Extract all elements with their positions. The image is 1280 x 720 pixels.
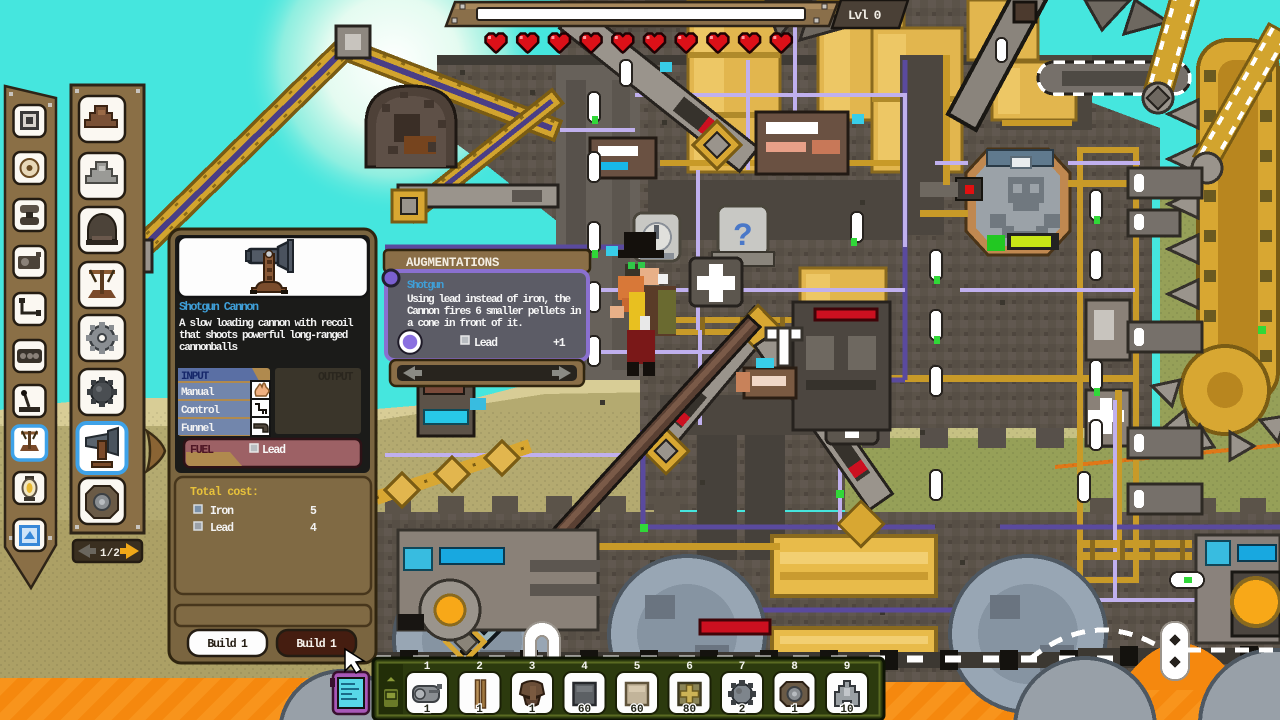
svg-text:Using lead instead of iron, th: Using lead instead of iron, the (407, 294, 572, 306)
svg-text:+1: +1 (553, 337, 566, 350)
svg-text:that shoots powerful long-rang: that shoots powerful long-ranged (179, 330, 348, 342)
svg-text:8: 8 (791, 661, 798, 673)
svg-text:4: 4 (581, 661, 588, 673)
svg-text:10: 10 (840, 704, 853, 716)
svg-text:Shotgun: Shotgun (407, 280, 444, 292)
svg-text:a cone in front of it.: a cone in front of it. (407, 318, 523, 330)
svg-text:Funnel: Funnel (181, 423, 215, 435)
svg-text:5: 5 (634, 661, 641, 673)
svg-text:INPUT: INPUT (181, 371, 210, 383)
svg-text:1: 1 (424, 704, 431, 716)
svg-text:FUEL: FUEL (190, 444, 214, 457)
svg-text:6: 6 (686, 661, 693, 673)
svg-text:1: 1 (529, 704, 536, 716)
svg-text:Manual: Manual (181, 387, 215, 399)
svg-text:AUGMENTATIONS: AUGMENTATIONS (406, 256, 500, 270)
svg-text:5: 5 (310, 505, 317, 518)
svg-text:Lead: Lead (210, 522, 234, 535)
svg-text:Shotgun Cannon: Shotgun Cannon (179, 300, 259, 314)
svg-text:60: 60 (630, 704, 643, 716)
svg-text:cannonballs: cannonballs (179, 342, 238, 354)
svg-text:9: 9 (844, 661, 851, 673)
svg-text:Iron: Iron (210, 505, 234, 518)
svg-text:Lead: Lead (262, 444, 286, 457)
svg-text:Lvl 0: Lvl 0 (848, 8, 882, 23)
svg-text:OUTPUT: OUTPUT (318, 371, 354, 384)
svg-text:1: 1 (424, 661, 431, 673)
svg-text:A slow loading cannon with rec: A slow loading cannon with recoil (179, 318, 354, 330)
svg-text:Build 1: Build 1 (207, 638, 248, 651)
svg-text:Build 1: Build 1 (296, 638, 337, 651)
svg-text:Total cost:: Total cost: (190, 486, 258, 499)
svg-text:Control: Control (181, 405, 220, 417)
svg-text:1: 1 (476, 704, 483, 716)
svg-text:60: 60 (578, 704, 591, 716)
svg-text:80: 80 (683, 704, 696, 716)
svg-text:2: 2 (476, 661, 483, 673)
svg-text:Lead: Lead (474, 337, 498, 350)
svg-text:2: 2 (739, 704, 746, 716)
svg-text:1/2: 1/2 (100, 548, 120, 560)
svg-text:4: 4 (310, 522, 317, 535)
svg-text:Cannon fires 6 smaller pellets: Cannon fires 6 smaller pellets in (407, 306, 581, 318)
svg-text:7: 7 (739, 661, 746, 673)
svg-text:1: 1 (791, 704, 798, 716)
svg-text:3: 3 (529, 661, 536, 673)
